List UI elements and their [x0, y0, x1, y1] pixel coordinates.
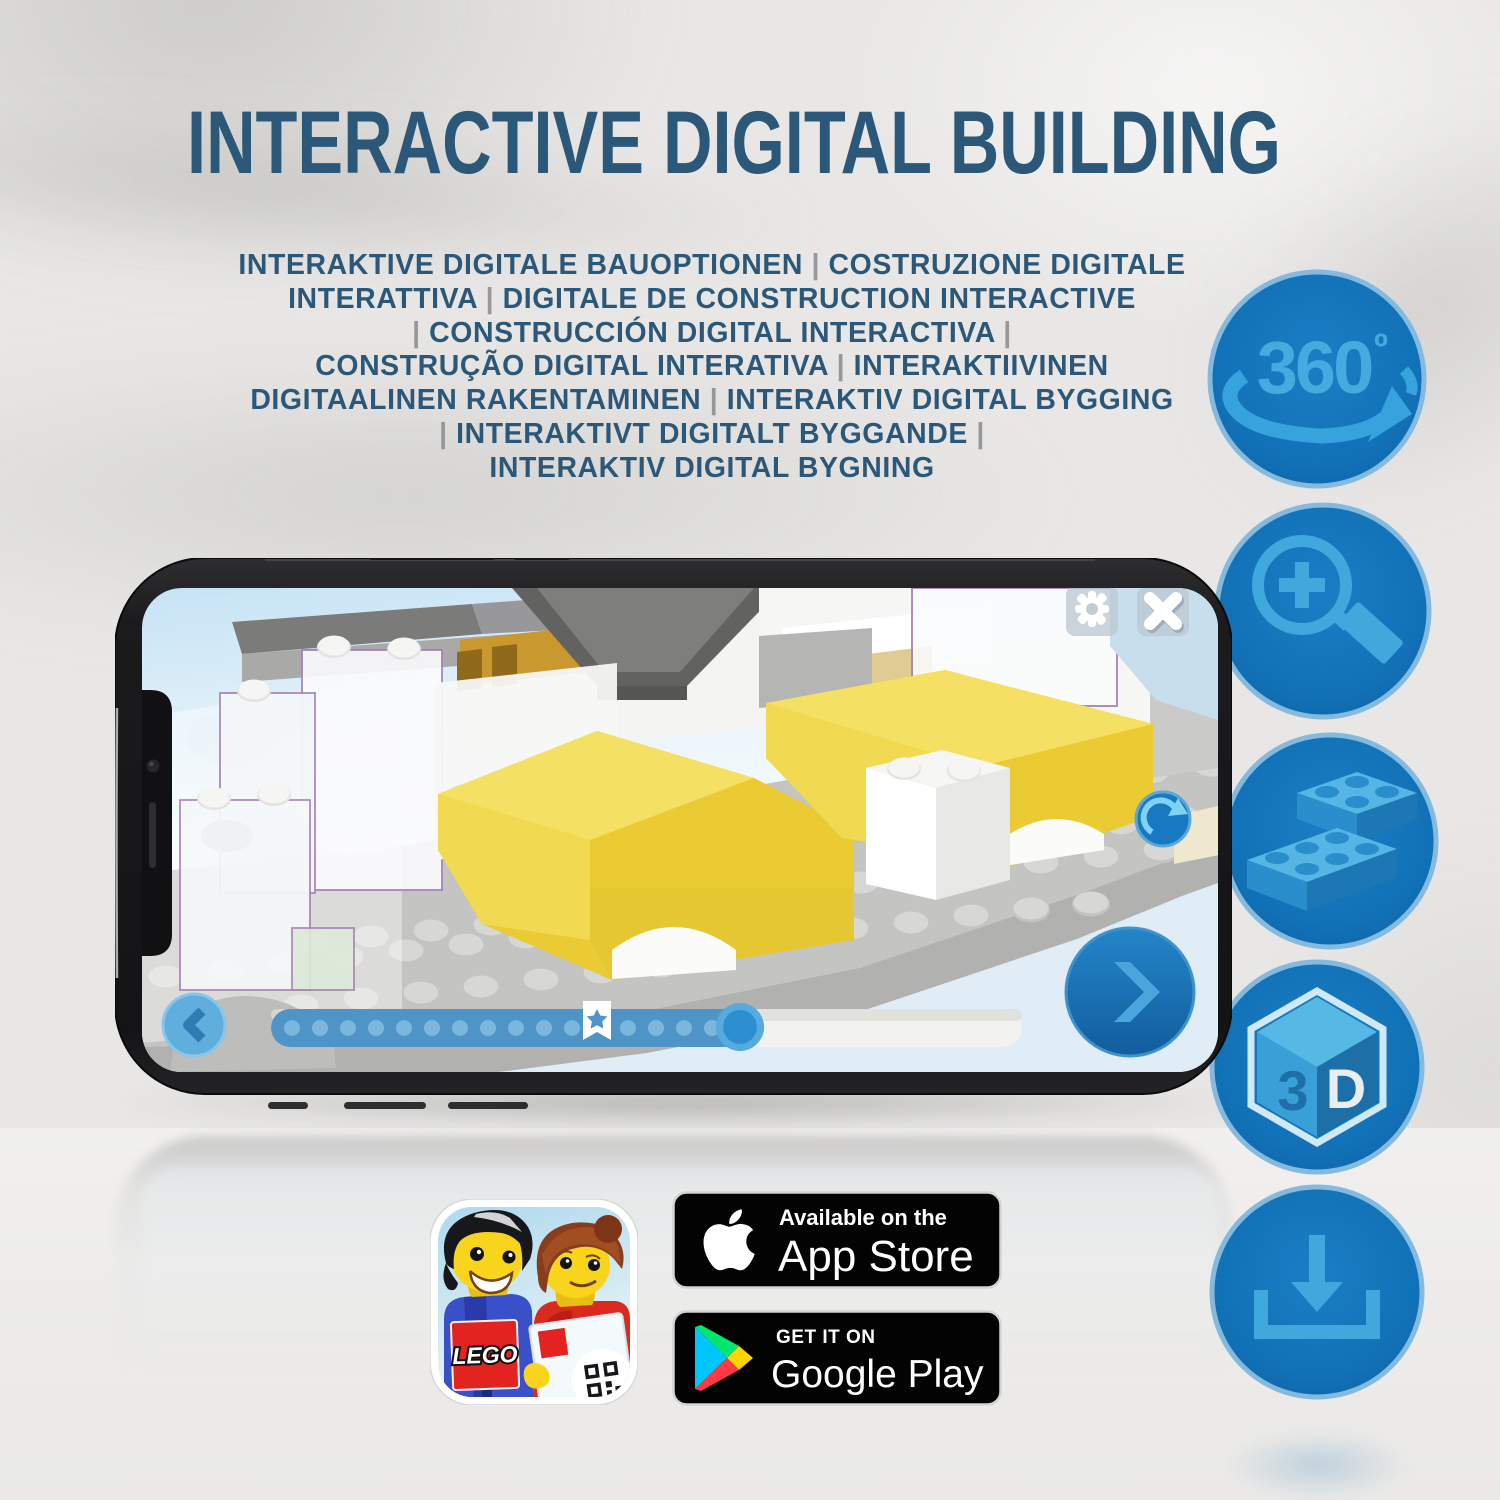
- svg-text:Google Play: Google Play: [771, 1353, 984, 1396]
- svg-text:D: D: [1326, 1057, 1366, 1120]
- svg-text:App Store: App Store: [778, 1232, 974, 1281]
- svg-text:Available on the: Available on the: [779, 1205, 947, 1230]
- svg-text:LEGO: LEGO: [452, 1341, 518, 1369]
- svg-text:º: º: [1374, 327, 1388, 369]
- svg-text:360: 360: [1257, 326, 1372, 409]
- svg-text:GET IT ON: GET IT ON: [776, 1327, 876, 1348]
- svg-text:3: 3: [1277, 1059, 1308, 1122]
